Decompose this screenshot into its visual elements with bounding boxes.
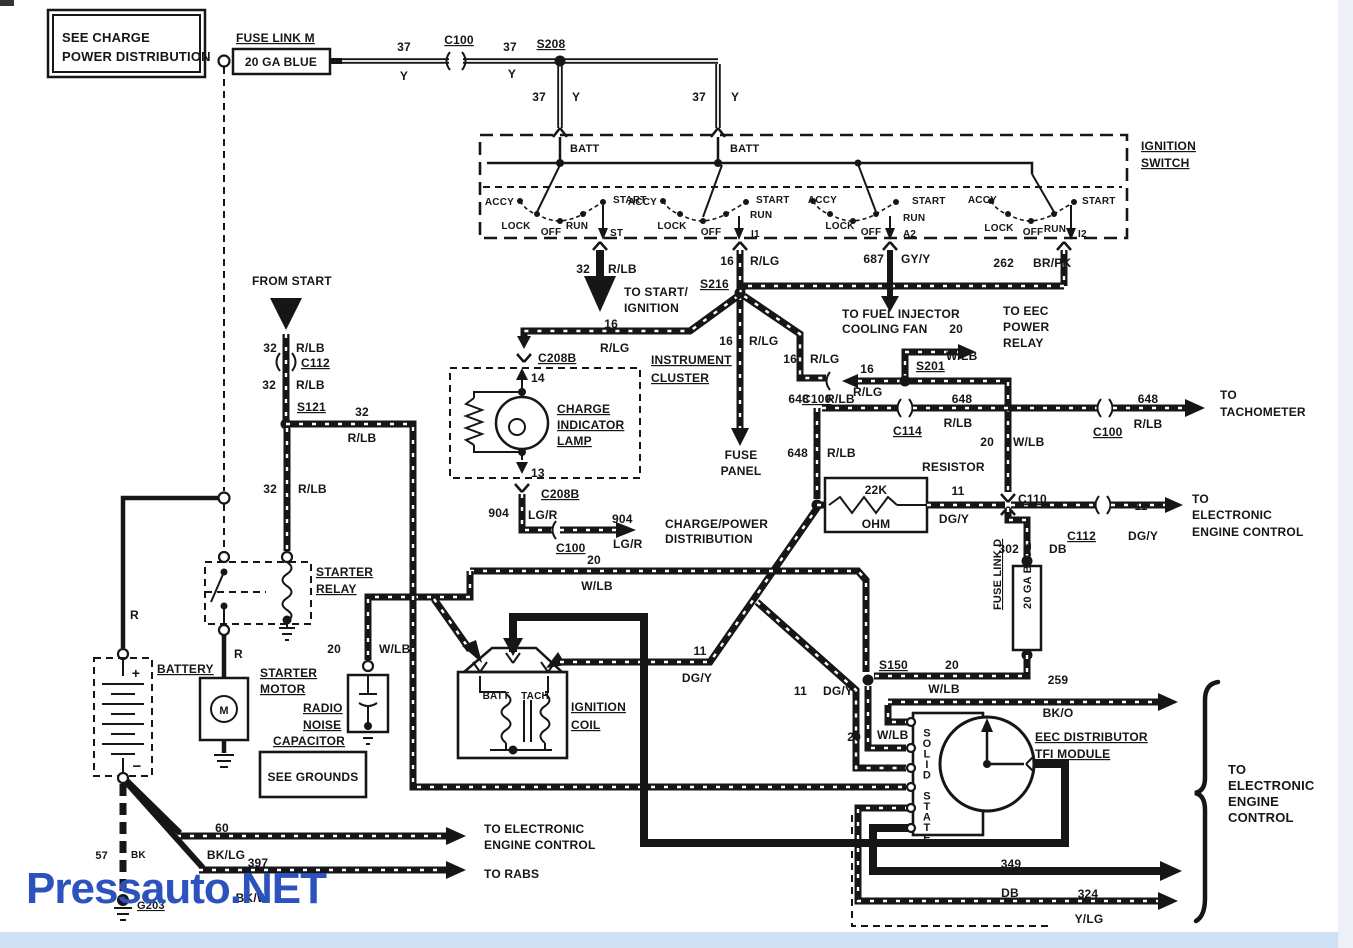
label-c112-110: C112 (1067, 529, 1096, 543)
label-a2-35: A2 (903, 229, 916, 240)
label-st-23: ST (610, 228, 623, 239)
label-see-charge-0: SEE CHARGE (62, 30, 150, 45)
label-to-start--48: TO START/ (624, 285, 688, 299)
label-ignition-16: IGNITION (1141, 139, 1196, 153)
label-57-173: 57 (95, 850, 108, 862)
label-c114-88: C114 (893, 424, 922, 438)
label-to-electronic-178: TO ELECTRONIC (484, 822, 585, 836)
label-11-121: 11 (794, 684, 807, 698)
label-accy-30: ACCY (808, 195, 837, 206)
label-y-13: Y (731, 90, 739, 104)
label-fuse-72: FUSE (725, 448, 758, 462)
label-cooling-fan-54: COOLING FAN (842, 322, 928, 336)
label-r-lb-156: R/LB (298, 482, 327, 496)
label-37-12: 37 (692, 90, 706, 104)
label-i2-41: I2 (1078, 229, 1087, 240)
label-648-89: 648 (952, 392, 973, 406)
label-start-31: START (912, 196, 946, 207)
label-r-lb-154: R/LB (348, 431, 377, 445)
label-start-25: START (756, 195, 790, 206)
label-32-147: 32 (263, 341, 277, 355)
label-r-lb-47: R/LB (608, 262, 637, 276)
label-i1-29: I1 (751, 229, 760, 240)
label-lock-20: LOCK (501, 221, 531, 232)
label-bk-o-126: BK/O (1043, 706, 1074, 720)
label-s208-9: S208 (537, 37, 566, 51)
label-11-98: 11 (951, 484, 964, 498)
label-dg-y-109: DG/Y (1128, 529, 1158, 543)
bottom-strip (0, 932, 1353, 948)
label-capacitor-169: CAPACITOR (273, 734, 345, 748)
label-r-lb-90: R/LB (944, 416, 973, 430)
label-60-176: 60 (215, 821, 229, 835)
label-16-51: 16 (720, 254, 734, 268)
label-panel-73: PANEL (721, 464, 762, 478)
eec-brace (1195, 682, 1218, 921)
label-m-166: M (219, 705, 228, 717)
label-fuse-link-m-2: FUSE LINK M (236, 31, 315, 45)
label-32-150: 32 (262, 378, 276, 392)
label-y-8: Y (508, 67, 516, 81)
label-r-lb-95: R/LB (826, 392, 855, 406)
label-16-61: 16 (860, 362, 874, 376)
label-to-fuel-injector-53: TO FUEL INJECTOR (842, 307, 960, 321)
label-16-64: 16 (783, 352, 797, 366)
label-648-94: 648 (788, 392, 809, 406)
label-distribution-87: DISTRIBUTION (665, 532, 753, 546)
label-engine-136: ENGINE (1228, 794, 1279, 809)
label-to-111: TO (1192, 492, 1209, 506)
label-off-33: OFF (861, 227, 882, 238)
label-lock-26: LOCK (657, 221, 687, 232)
label-c100-105: C100 (1093, 425, 1123, 439)
label-dg-y-122: DG/Y (823, 684, 853, 698)
bko-eec-arrow (1158, 693, 1178, 711)
label-37-7: 37 (503, 40, 517, 54)
label-c112-149: C112 (301, 356, 330, 370)
db-arrow (1160, 861, 1182, 881)
fuse-panel-arrow (731, 428, 749, 446)
label-y-lg-133: Y/LG (1075, 912, 1104, 926)
label-bk-w-181: BK/W (236, 891, 269, 905)
label-ignition-49: IGNITION (624, 301, 679, 315)
label-see-grounds-172: SEE GROUNDS (268, 770, 359, 784)
label-electronic-135: ELECTRONIC (1228, 778, 1315, 793)
label-32-153: 32 (355, 405, 369, 419)
label-y-11: Y (572, 90, 580, 104)
label-instrument-68: INSTRUMENT (651, 353, 732, 367)
label-bk-174: BK (131, 850, 146, 861)
label-radio-167: RADIO (303, 701, 343, 715)
label-gy-y-43: GY/Y (901, 252, 930, 266)
label-r-lg-67: R/LG (600, 341, 629, 355)
label-cluster-69: CLUSTER (651, 371, 709, 385)
label-to-134: TO (1228, 762, 1246, 777)
ylg-arrow (1158, 892, 1178, 910)
label-11-138: 11 (693, 644, 706, 658)
label-397-180: 397 (248, 856, 269, 870)
label-run-28: RUN (750, 210, 772, 221)
label-37-4: 37 (397, 40, 411, 54)
right-strip (1338, 0, 1353, 948)
label-20-55: 20 (949, 322, 963, 336)
label-charge-74: CHARGE (557, 402, 610, 416)
label-s216-50: S216 (700, 277, 729, 291)
label-w-lb-56: W/LB (946, 349, 978, 363)
label-lock-32: LOCK (825, 221, 855, 232)
label-r-lg-65: R/LG (810, 352, 839, 366)
label-relay-59: RELAY (1003, 336, 1044, 350)
label-s121-152: S121 (297, 400, 326, 414)
label-tach-145: TACH (521, 691, 549, 702)
wiring-diagram-page: SEE CHARGEPOWER DISTRIBUTIONFUSE LINK M2… (0, 0, 1353, 948)
label-to-rabs-182: TO RABS (484, 867, 539, 881)
label-c100-83: C100 (556, 541, 586, 555)
label-r-lb-97: R/LB (827, 446, 856, 460)
label-tfi-module-128: TFI MODULE (1035, 747, 1110, 761)
label-noise-168: NOISE (303, 718, 341, 732)
battery-ground-wires (114, 780, 466, 920)
label-22k-92: 22K (865, 483, 888, 497)
label-16-66: 16 (604, 317, 618, 331)
label-tachometer-107: TACHOMETER (1220, 405, 1306, 419)
label-batt-144: BATT (483, 691, 510, 702)
label-n-184: N (281, 307, 291, 322)
label-r-lb-104: R/LB (1134, 417, 1163, 431)
eec-dgy-arrow (1165, 497, 1183, 513)
label-run-22: RUN (566, 221, 588, 232)
label-687-42: 687 (863, 252, 884, 266)
label-349-130: 349 (1001, 857, 1022, 871)
label-electronic-112: ELECTRONIC (1192, 508, 1272, 522)
label-indicator-75: INDICATOR (557, 418, 624, 432)
label-r-lg-62: R/LG (853, 385, 882, 399)
label-20-123: 20 (847, 730, 861, 744)
label-off-21: OFF (541, 227, 562, 238)
label-20-170: 20 (327, 642, 341, 656)
label-259-125: 259 (1048, 673, 1069, 687)
label-c208b-80: C208B (541, 487, 579, 501)
starter-relay (205, 552, 311, 640)
label-r-lb-151: R/LB (296, 378, 325, 392)
label-motor-165: MOTOR (260, 682, 306, 696)
label-r-lb-148: R/LB (296, 341, 325, 355)
wlb-ignition-feed (368, 571, 1178, 748)
label-start-37: START (1082, 196, 1116, 207)
label-off-39: OFF (1023, 227, 1044, 238)
diagram-labels: SEE CHARGEPOWER DISTRIBUTIONFUSE LINK M2… (62, 30, 1315, 926)
label-ohm-93: OHM (862, 517, 891, 531)
label-ignition-142: IGNITION (571, 700, 626, 714)
label-relay-158: RELAY (316, 582, 357, 596)
label-accy-36: ACCY (968, 195, 997, 206)
label-324-132: 324 (1078, 887, 1099, 901)
label-starter-164: STARTER (260, 666, 317, 680)
eec-bklg-arrow (446, 827, 466, 845)
label-engine-control-179: ENGINE CONTROL (484, 838, 595, 852)
label-bk-lg-177: BK/LG (207, 848, 245, 862)
label-s150-118: S150 (879, 658, 908, 672)
label-fuse-link-d-116: FUSE LINK D (992, 539, 1004, 610)
label-switch-17: SWITCH (1141, 156, 1190, 170)
corner-mark (0, 0, 14, 6)
label-accy-24: ACCY (628, 197, 657, 208)
label-y-5: Y (400, 69, 408, 83)
label-w-lb-141: W/LB (581, 579, 613, 593)
label-dg-y-139: DG/Y (682, 671, 712, 685)
label-904-84: 904 (612, 512, 633, 526)
label-262-44: 262 (993, 256, 1014, 270)
label-engine-control-113: ENGINE CONTROL (1192, 525, 1303, 539)
label-20-ga-blue-117: 20 GA BLUE (1022, 543, 1034, 609)
label-power-distribution-1: POWER DISTRIBUTION (62, 49, 211, 64)
label-r-163: R (234, 647, 243, 661)
label-w-lb-124: W/LB (877, 728, 909, 742)
label-20-119: 20 (945, 658, 959, 672)
label-16-70: 16 (719, 334, 733, 348)
label-solid-state-129: SOLIDSTATE (923, 728, 932, 845)
label-battery-159: BATTERY (157, 662, 214, 676)
label-r-lg-52: R/LG (750, 254, 779, 268)
label-37-10: 37 (532, 90, 546, 104)
label-648-103: 648 (1138, 392, 1159, 406)
label-m-183: M (594, 290, 605, 305)
label-accy-18: ACCY (485, 197, 514, 208)
radio-noise-capacitor (348, 661, 388, 744)
label-20-ga-blue-3: 20 GA BLUE (245, 55, 317, 69)
label-s201-60: S201 (916, 359, 945, 373)
label-from-start-146: FROM START (252, 274, 332, 288)
label-lg-r-85: LG/R (613, 537, 643, 551)
label-648-96: 648 (787, 446, 808, 460)
label-to-106: TO (1220, 388, 1237, 402)
label---160: + (132, 665, 140, 681)
label-14-78: 14 (531, 371, 545, 385)
tachometer-arrow (1185, 399, 1205, 417)
label-c208b-77: C208B (538, 351, 576, 365)
label-w-lb-102: W/LB (1013, 435, 1045, 449)
label-20-101: 20 (980, 435, 994, 449)
label-c100-6: C100 (444, 33, 474, 47)
label-power-58: POWER (1003, 320, 1049, 334)
label-w-lb-120: W/LB (928, 682, 960, 696)
label---161: − (133, 758, 142, 775)
label-dg-y-99: DG/Y (939, 512, 969, 526)
label-run-40: RUN (1044, 224, 1066, 235)
label-starter-157: STARTER (316, 565, 373, 579)
label-32-155: 32 (263, 482, 277, 496)
label-r-162: R (130, 608, 139, 622)
label-coil-143: COIL (571, 718, 600, 732)
label-batt-14: BATT (570, 143, 599, 155)
label-resistor-91: RESISTOR (922, 460, 985, 474)
label-11-108: 11 (1134, 499, 1147, 513)
label-c110-100: C110 (1018, 492, 1047, 506)
label-batt-15: BATT (730, 143, 759, 155)
label-lg-r-82: LG/R (528, 508, 558, 522)
label-r-lg-71: R/LG (749, 334, 778, 348)
label-charge-power-86: CHARGE/POWER (665, 517, 768, 531)
label-run-34: RUN (903, 213, 925, 224)
label-20-140: 20 (587, 553, 601, 567)
label-to-eec-57: TO EEC (1003, 304, 1049, 318)
label-lock-38: LOCK (984, 223, 1014, 234)
label-w-lb-171: W/LB (379, 642, 411, 656)
label-off-27: OFF (701, 227, 722, 238)
wiring-diagram: SEE CHARGEPOWER DISTRIBUTIONFUSE LINK M2… (0, 0, 1353, 948)
label-lamp-76: LAMP (557, 434, 592, 448)
label-db-115: DB (1049, 542, 1067, 556)
label-13-79: 13 (531, 466, 545, 480)
label-db-131: DB (1001, 886, 1019, 900)
label-g203-175: G203 (137, 900, 165, 912)
label-904-81: 904 (488, 506, 509, 520)
fusible-link-drop (219, 67, 230, 551)
label-32-46: 32 (576, 262, 590, 276)
label-eec-distributor-127: EEC DISTRIBUTOR (1035, 730, 1148, 744)
rabs-arrow (446, 861, 466, 879)
label-control-137: CONTROL (1228, 810, 1294, 825)
label-br-pk-45: BR/PK (1033, 256, 1071, 270)
